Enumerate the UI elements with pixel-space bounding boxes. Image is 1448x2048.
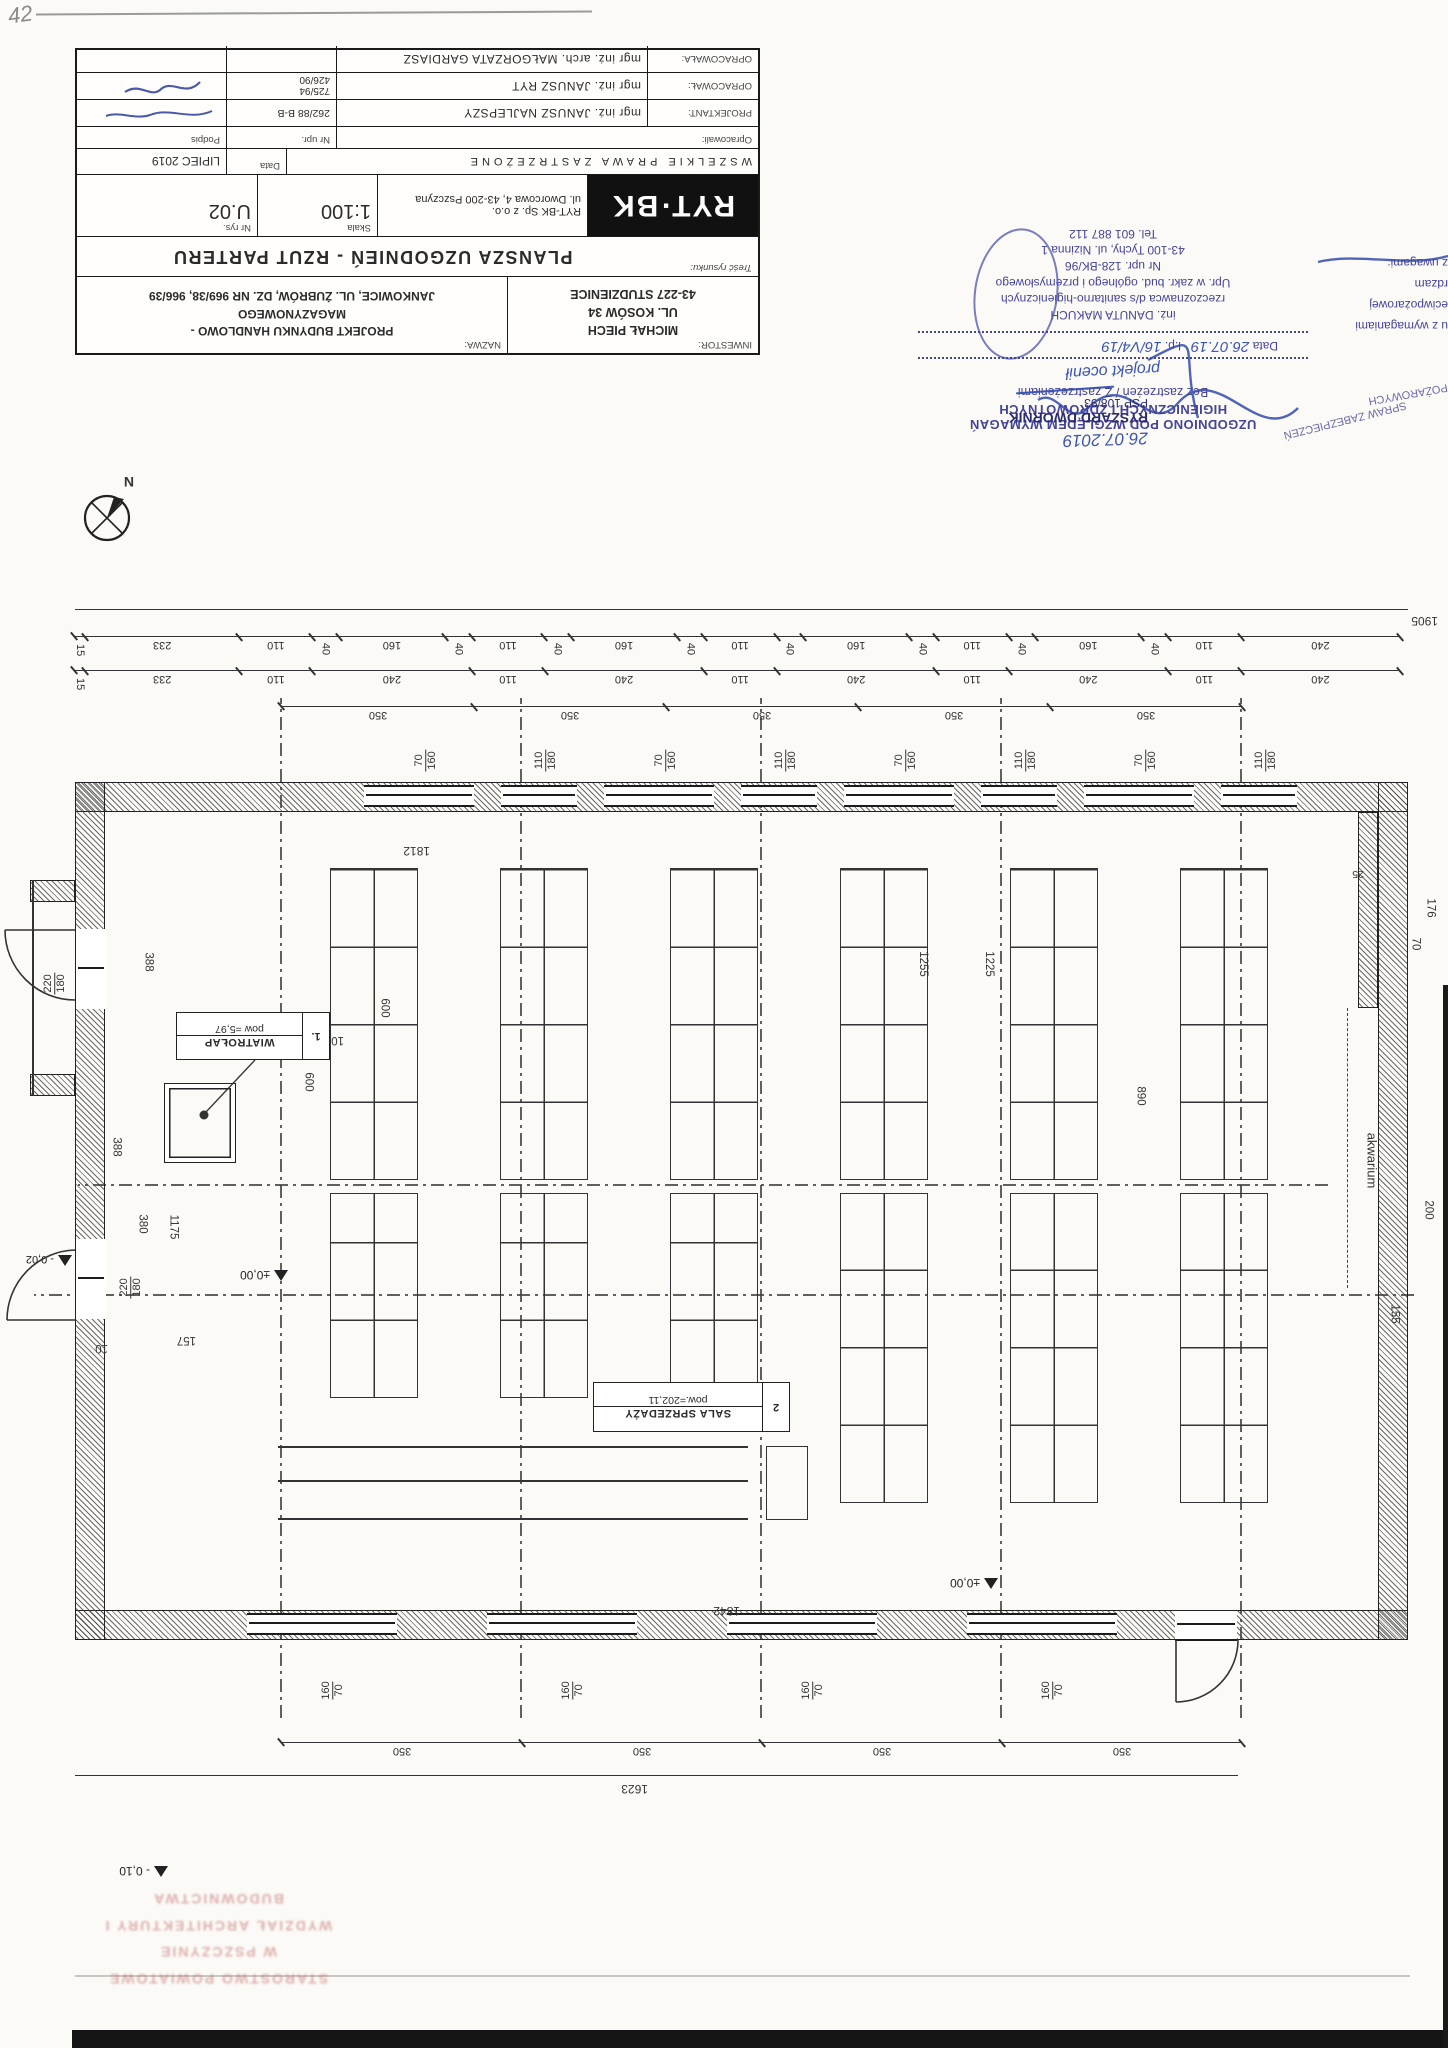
dim-label: 10 (331, 1034, 344, 1046)
company-line: ul. Dworcowa 4, 43-200 Pszczyna (384, 194, 581, 206)
nazwa-cell: NAZWA: PROJEKT BUDYNKU HANDLOWO -MAGAZYN… (77, 277, 508, 353)
door-dim-label: 220180 (118, 1276, 143, 1298)
person-role: PROJEKTANT: (648, 100, 758, 126)
window (967, 1613, 1117, 1635)
fire-expert-stamp: 26.07.2019 RYSZARD DWORNIK PSP 108/93 (888, 396, 1148, 452)
dimension-segment: 110 (936, 636, 1009, 654)
window (487, 1613, 637, 1635)
dimension-segment: 233 (85, 636, 240, 654)
window (981, 785, 1057, 807)
dim-label: 176 (1424, 898, 1436, 917)
dimension-segment: 240 (545, 670, 704, 688)
dim-label: 155 (1388, 1304, 1400, 1323)
door-opening-top (1175, 1611, 1237, 1641)
partition-akwarium (1358, 812, 1378, 1008)
person-name: mgr inż. JANUSZ RYT (337, 73, 648, 99)
dimension-segment: 350 (1002, 1742, 1242, 1760)
person-upr: 725/94 426/90 (227, 73, 337, 99)
akwarium-dashed-line (1347, 1008, 1348, 1288)
inner-width-label: 1842 (713, 1604, 740, 1618)
dim-label: 388 (110, 1137, 122, 1156)
room-label-sala: 2 SALA SPRZEDAŻY pow.=202,11 (593, 1382, 790, 1432)
dimension-row-240-110: 24011024011024011024011024011023315 (75, 670, 1400, 688)
dimension-segment: 350 (666, 706, 858, 724)
title-block-row-investor: INWESTOR: MICHAŁ PIECHUL. KOSÓW 3443-227… (77, 277, 758, 353)
dimension-segment: 110 (1168, 670, 1241, 688)
dim-label: 1255 (917, 951, 929, 977)
door-opening-right-lower (76, 929, 106, 1009)
level-marker: - 0,10 (119, 1864, 168, 1878)
door-opening-right-upper (76, 1239, 106, 1319)
dimension-segment: 110 (704, 670, 777, 688)
dim-label: 1175 (168, 1215, 180, 1240)
dimension-segment: 240 (1009, 670, 1168, 688)
door-dim-label: 220180 (42, 972, 67, 994)
company-line: RYT-BK Sp. z o.o. (384, 206, 581, 218)
podpis-header: Podpis (77, 127, 227, 148)
stamp-dotted-line: projekt ocenił (918, 357, 1308, 379)
nazwa-line: PROJEKT BUDYNKU HANDLOWO - (83, 322, 501, 339)
counter-line (278, 1446, 748, 1448)
dimension-segment: 240 (1241, 670, 1400, 688)
shelving-gondola (330, 868, 418, 1180)
grid-axis-vertical (760, 698, 762, 1718)
inner-width-label: 1812 (403, 844, 430, 858)
window-dim-label: 110180 (533, 749, 558, 771)
dimension-segment: 160 (571, 636, 677, 654)
dim-label: 388 (142, 952, 154, 971)
tresc-label-cell: Treść rysunku: (668, 237, 758, 276)
data-value: LIPIEC 2019 (77, 149, 227, 174)
level-marker: ±0,00 (240, 1268, 288, 1282)
office-stamp-line: STAROSTWO POWIATOWE (68, 1965, 368, 1992)
shelving-gondola (840, 1193, 928, 1503)
person-upr: 262/88 B-B (227, 100, 337, 126)
signature-squiggle (100, 78, 220, 96)
shelving-gondola (670, 1193, 758, 1398)
inwestor-lines: MICHAŁ PIECHUL. KOSÓW 3443-227 STUDZIENI… (514, 285, 752, 339)
dim-label: 1225 (983, 951, 995, 977)
stamp-line: rzeczoznawca d/s sanitarno-higienicznych (898, 291, 1328, 307)
dimension-segment: 160 (803, 636, 909, 654)
dimension-segment: 350 (858, 706, 1050, 724)
stamp-line: inż. DANUTA MAKUCH (898, 307, 1328, 323)
window (604, 785, 714, 807)
starostwo-office-stamp: STAROSTWO POWIATOWEW PSZCZYNIEWYDZIAŁ AR… (68, 1886, 368, 1992)
dim-label: 200 (1422, 1200, 1434, 1219)
overall-dim-line (75, 609, 1408, 610)
drawing-sheet-flipped: 16070 16070 16070 16070 110180 70160 110… (0, 0, 1448, 2048)
stamp-line: Tel. 601 887 112 (898, 226, 1328, 242)
window-dim-label: 16070 (800, 1681, 825, 1699)
akwarium-label: akwarium (1365, 1133, 1380, 1189)
dimension-segment: 350 (522, 1742, 762, 1760)
office-stamp-line: W PSZCZYNIE (68, 1939, 368, 1966)
handwritten-note: projekt ocenił (1065, 359, 1160, 382)
scanned-floor-plan-page: 42 16070 16070 16070 16 (0, 0, 1448, 2048)
title-block-row-logo: RYT·BK RYT-BK Sp. z o.o.ul. Dworcowa 4, … (77, 175, 758, 237)
overall-width-label: 1905 (1411, 614, 1438, 628)
window (1221, 785, 1297, 807)
dim-label: 157 (177, 1334, 196, 1346)
shelving-gondola (1010, 868, 1098, 1180)
data-label: Data (227, 149, 287, 174)
dimension-segment: 110 (1168, 636, 1241, 654)
nr-upr-header: Nr upr. (227, 127, 337, 148)
window-dim-label: 70160 (413, 749, 438, 771)
dimension-segment: 160 (339, 636, 445, 654)
dimension-segment: 350 (282, 1742, 522, 1760)
title-block: INWESTOR: MICHAŁ PIECHUL. KOSÓW 3443-227… (75, 48, 760, 355)
dim-label: 25 (1352, 868, 1364, 880)
window-dim-label: 70160 (653, 749, 678, 771)
shelving-gondola (670, 868, 758, 1180)
dim-label: 380 (136, 1214, 148, 1233)
dimension-segment: 110 (239, 636, 312, 654)
grid-axis-vertical (1000, 698, 1002, 1718)
window-dim-label: 16070 (1040, 1681, 1065, 1699)
dimension-segment: 350 (282, 706, 474, 724)
nr-rys-cell: Nr rys. U.02 (77, 175, 258, 236)
dimension-segment: 110 (936, 670, 1009, 688)
handwritten-date: 26.07.2019 (888, 427, 1149, 456)
wall-top: 16070 16070 16070 16070 (75, 1610, 1408, 1640)
shelving-gondola (500, 868, 588, 1180)
front-dim-line (75, 1775, 1238, 1776)
wall-bottom: 110180 70160 110180 70160 110180 70160 1… (75, 782, 1408, 812)
expert-id: PSP 108/93 (888, 396, 1148, 410)
wiatrolap-room (164, 1083, 236, 1163)
dimension-segment: 15 (75, 636, 85, 654)
dimension-row-350: 350350350350350 (282, 706, 1242, 724)
window-dim-label: 110180 (1013, 749, 1038, 771)
wall-right (75, 782, 105, 1640)
dimension-segment: 40 (445, 636, 472, 654)
shelving-gondola (840, 868, 928, 1180)
person-row: OPRACOWAŁ: mgr inż. JANUSZ RYT 725/94 42… (77, 73, 758, 100)
dimension-segment: 350 (1050, 706, 1242, 724)
dimension-segment: 40 (677, 636, 704, 654)
signature-squiggle (100, 105, 220, 123)
dimension-segment: 240 (1241, 636, 1400, 654)
dimension-segment: 350 (762, 1742, 1002, 1760)
counter-end-box (766, 1446, 808, 1520)
dimension-segment: 350 (474, 706, 666, 724)
stamp-date-line: Data 26.07.19 l.p. 16/V4/19 (918, 331, 1308, 355)
counter-line (278, 1480, 748, 1482)
north-compass-icon (85, 496, 129, 540)
skala-cell: Skala 1:100 (258, 175, 378, 236)
dimension-segment: 233 (85, 670, 240, 688)
nazwa-lines: PROJEKT BUDYNKU HANDLOWO -MAGAZYNOWEGOJA… (83, 287, 501, 339)
dim-label: 600 (302, 1072, 314, 1091)
dim-label: 600 (378, 998, 390, 1017)
title-block-row-title: Treść rysunku: PLANSZA UZGODNIEŃ - RZUT … (77, 237, 758, 277)
window (844, 785, 954, 807)
person-row: PROJEKTANT: mgr inż. JANUSZ NAJLEPSZY 26… (77, 100, 758, 127)
window (364, 785, 474, 807)
expert-identity-block: inż. DANUTA MAKUCHrzeczoznawca d/s sanit… (898, 226, 1328, 323)
dimension-row-windows: 2401104016040110401604011040160401104016… (75, 636, 1400, 654)
dim-label: 890 (1134, 1086, 1146, 1105)
inwestor-line: 43-227 STUDZIENICE (514, 285, 752, 303)
level-marker: ±0,00 (950, 1576, 998, 1590)
grid-axis-horizontal (78, 1184, 1328, 1186)
dimension-segment: 40 (544, 636, 571, 654)
company-logo: RYT·BK (588, 175, 758, 236)
north-label: N (124, 474, 134, 490)
person-name: mgr inż. JANUSZ NAJLEPSZY (337, 100, 648, 126)
stamp-line: Upr. w zakr. bud. ogólnego i przemysłowe… (898, 274, 1328, 290)
expert-name: RYSZARD DWORNIK (888, 410, 1148, 426)
window-dim-label: 70160 (1133, 749, 1158, 771)
grid-axis-vertical (280, 698, 282, 1718)
dimension-segment: 240 (777, 670, 936, 688)
dimension-row-top-350: 350350350350 (282, 1742, 1242, 1760)
shelving-gondola (1180, 868, 1268, 1180)
dim-label: 70 (1410, 938, 1422, 951)
inwestor-line: MICHAŁ PIECH (514, 321, 752, 339)
room-label-wiatrolap: 1. WIATROŁAP pow =5,97 (176, 1012, 330, 1060)
dimension-segment: 160 (1035, 636, 1141, 654)
window (741, 785, 817, 807)
shelving-gondola (1010, 1193, 1098, 1503)
window (247, 1613, 397, 1635)
person-role: OPRACOWAŁ: (648, 73, 758, 99)
window (1084, 785, 1194, 807)
rights-notice: WSZELKIE PRAWA ZASTRZEŻONE (287, 149, 758, 174)
window-dim-label: 16070 (320, 1681, 345, 1699)
dimension-segment: 40 (1009, 636, 1036, 654)
dimension-segment: 40 (1141, 636, 1168, 654)
dimension-segment: 240 (312, 670, 471, 688)
window (727, 1613, 877, 1635)
counter-line (278, 1518, 748, 1520)
shelving-gondola (1180, 1193, 1268, 1503)
person-row: OPRACOWAŁA: mgr inż. arch. MAŁGORZATA GA… (77, 46, 758, 73)
title-block-row-rights: WSZELKIE PRAWA ZASTRZEŻONE Data LIPIEC 2… (77, 149, 758, 175)
dimension-segment: 110 (704, 636, 777, 654)
inwestor-cell: INWESTOR: MICHAŁ PIECHUL. KOSÓW 3443-227… (508, 277, 758, 353)
nazwa-line: JANKOWICE, UL. ŻUBRÓW, DZ. NR 969/38, 96… (83, 287, 501, 304)
inwestor-line: UL. KOSÓW 34 (514, 303, 752, 321)
front-width-label: 1623 (621, 1782, 648, 1796)
wall-left (1378, 782, 1408, 1640)
person-signature (77, 100, 227, 126)
office-stamp-line: WYDZIAŁ ARCHITEKTURY I BUDOWNICTWA (68, 1886, 368, 1939)
window-dim-label: 70160 (893, 749, 918, 771)
person-role: OPRACOWAŁA: (648, 46, 758, 72)
person-signature (77, 73, 227, 99)
title-block-row-headers: Opracowali: Nr upr. Podpis (77, 127, 758, 149)
fire-expert-fragment: POŻAROWYCH (1368, 381, 1448, 407)
shelving-gondola (500, 1193, 588, 1398)
window (501, 785, 577, 807)
dim-label: 10 (95, 1342, 108, 1354)
stamp-line: 43-100 Tychy, ul. Nizinna 1 (898, 242, 1328, 258)
shelving-gondola (330, 1193, 418, 1398)
dimension-segment: 40 (312, 636, 339, 654)
person-name: mgr inż. arch. MAŁGORZATA GARDIASZ (337, 46, 648, 72)
window-dim-label: 110180 (1253, 749, 1278, 771)
window-dim-label: 16070 (560, 1681, 585, 1699)
dimension-segment: 110 (472, 636, 545, 654)
dimension-segment: 15 (75, 670, 85, 688)
person-signature (77, 46, 227, 72)
porch-wall-stub (30, 880, 75, 902)
dimension-segment: 40 (909, 636, 936, 654)
window-dim-label: 110180 (773, 749, 798, 771)
porch-wall-stub (30, 1074, 75, 1096)
company-address: RYT-BK Sp. z o.o.ul. Dworcowa 4, 43-200 … (378, 175, 588, 236)
drawing-title: PLANSZA UZGODNIEŃ - RZUT PARTERU (77, 237, 668, 276)
dimension-segment: 110 (239, 670, 312, 688)
level-marker: - 0,02 (26, 1253, 72, 1266)
dimension-segment: 110 (472, 670, 545, 688)
nazwa-line: MAGAZYNOWEGO (83, 304, 501, 321)
stamp-line: Nr upr. 128-BK/96 (898, 258, 1328, 274)
person-upr (227, 46, 337, 72)
dimension-segment: 40 (777, 636, 804, 654)
porch-edge (32, 880, 34, 1096)
opracowali-header: Opracowali: (337, 127, 758, 148)
